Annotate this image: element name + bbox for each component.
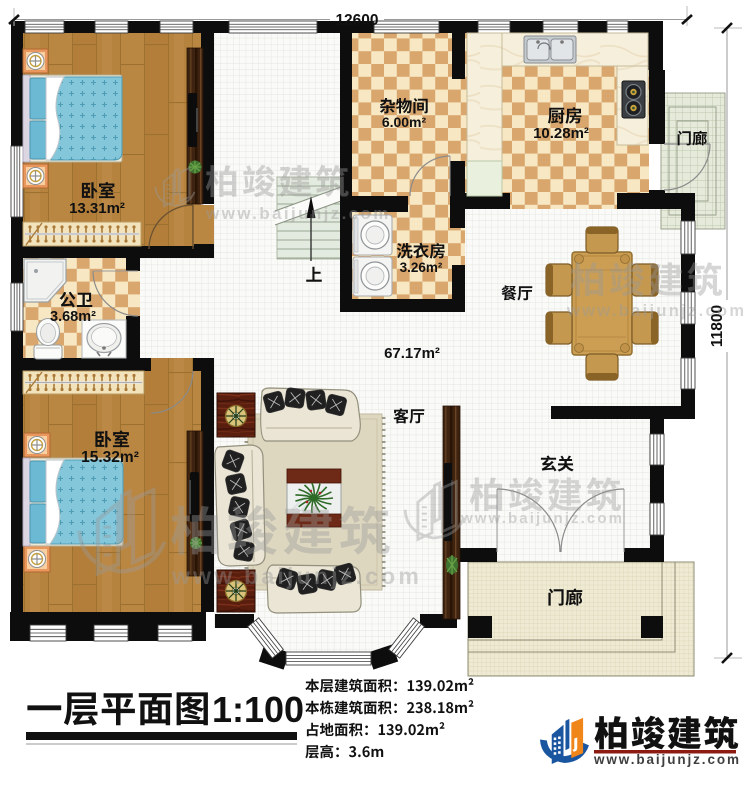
svg-text:www.baijunjz.com: www.baijunjz.com [460,510,624,527]
svg-text:6.00m²: 6.00m² [382,114,427,130]
svg-text:www.baijunjz.com: www.baijunjz.com [171,563,422,589]
svg-text:www.baijunjz.com: www.baijunjz.com [593,752,741,767]
svg-text:67.17m²: 67.17m² [384,345,440,362]
svg-text:15.32m²: 15.32m² [81,449,139,466]
svg-text:www.baijunjz.com: www.baijunjz.com [205,204,391,223]
svg-text:www.baijunjz.com: www.baijunjz.com [566,302,746,320]
svg-text:3.26m²: 3.26m² [400,260,443,275]
svg-text:10.28m²: 10.28m² [533,125,589,142]
svg-text:3.68m²: 3.68m² [50,309,96,325]
svg-text:13.31m²: 13.31m² [69,200,125,217]
svg-text:1:100: 1:100 [212,689,304,730]
svg-text:12600: 12600 [335,12,378,29]
